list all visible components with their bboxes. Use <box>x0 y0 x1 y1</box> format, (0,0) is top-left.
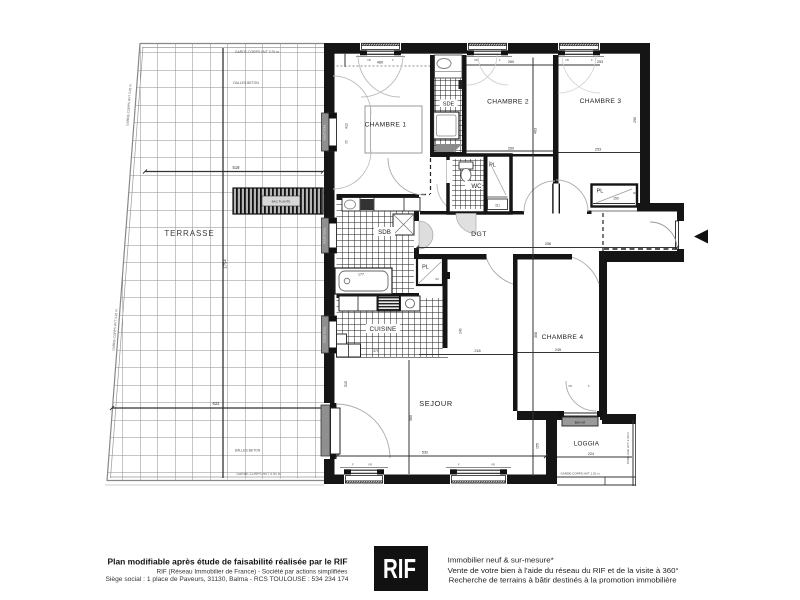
svg-text:VR: VR <box>474 58 478 62</box>
svg-text:218: 218 <box>474 349 480 353</box>
svg-text:519: 519 <box>233 165 241 170</box>
svg-text:LOGGIA: LOGGIA <box>574 441 600 448</box>
svg-text:PL: PL <box>597 189 604 195</box>
svg-text:F: F <box>588 384 590 388</box>
svg-text:177: 177 <box>358 273 364 277</box>
svg-text:260: 260 <box>508 60 514 64</box>
svg-text:PARE-VUE HVT 1.60 m: PARE-VUE HVT 1.60 m <box>626 432 630 464</box>
svg-text:VOLET ROUL.: VOLET ROUL. <box>323 326 327 343</box>
svg-text:63: 63 <box>435 277 439 281</box>
svg-text:253: 253 <box>595 148 601 152</box>
svg-text:CUISINE: CUISINE <box>370 326 397 333</box>
svg-text:253: 253 <box>597 60 603 64</box>
svg-text:SDE: SDE <box>443 102 455 108</box>
svg-text:306: 306 <box>534 332 538 338</box>
svg-text:95: 95 <box>345 140 349 144</box>
svg-text:F: F <box>591 58 593 62</box>
svg-text:Siège social : 1 place de Pave: Siège social : 1 place de Paveurs, 31130… <box>106 577 350 583</box>
svg-text:60: 60 <box>633 191 637 195</box>
svg-text:PL: PL <box>422 265 429 271</box>
svg-text:VR: VR <box>491 463 495 467</box>
svg-text:CHAMBRE 4: CHAMBRE 4 <box>542 334 584 341</box>
svg-text:DALLES BETON: DALLES BETON <box>233 81 259 85</box>
svg-text:RIF (Réseau Immobilier de Fra: RIF (Réseau Immobilier de France) - Soci… <box>157 569 348 575</box>
svg-text:240: 240 <box>459 328 463 334</box>
svg-text:Plan modifiable après étude de: Plan modifiable après étude de faisabili… <box>108 557 348 567</box>
svg-text:360: 360 <box>409 415 413 421</box>
svg-text:VR: VR <box>368 463 372 467</box>
svg-text:1754: 1754 <box>223 259 228 269</box>
svg-text:515: 515 <box>344 381 348 387</box>
svg-text:DALLES BETON: DALLES BETON <box>235 449 261 453</box>
svg-text:CHAMBRE 2: CHAMBRE 2 <box>487 99 529 106</box>
svg-text:290: 290 <box>633 117 637 123</box>
svg-text:VR: VR <box>367 58 371 62</box>
svg-text:F: F <box>499 58 501 62</box>
svg-text:532: 532 <box>422 451 428 455</box>
svg-text:622: 622 <box>213 401 221 406</box>
svg-text:DGT: DGT <box>471 231 487 238</box>
svg-text:VR: VR <box>568 384 572 388</box>
svg-text:311: 311 <box>495 204 500 208</box>
svg-text:370: 370 <box>373 349 379 353</box>
svg-text:VOLET ROUL.: VOLET ROUL. <box>323 123 327 140</box>
svg-text:BSO+VR: BSO+VR <box>575 421 586 425</box>
svg-text:BAC PLANTE: BAC PLANTE <box>272 200 291 204</box>
svg-text:Vente de votre bien à l'aide d: Vente de votre bien à l'aide du réseau d… <box>448 566 679 575</box>
svg-text:WC: WC <box>471 183 482 190</box>
svg-text:TERRASSE: TERRASSE <box>164 229 214 238</box>
svg-text:155: 155 <box>536 443 540 449</box>
svg-text:Recherche de terrains à bâtir: Recherche de terrains à bâtir destinés à… <box>449 575 677 584</box>
svg-text:F: F <box>352 463 354 467</box>
svg-text:412: 412 <box>345 123 349 129</box>
svg-text:GARDE-CORPS HVT 0.91 m: GARDE-CORPS HVT 0.91 m <box>236 472 280 476</box>
svg-text:CHAMBRE 1: CHAMBRE 1 <box>365 122 407 129</box>
svg-text:F: F <box>392 58 394 62</box>
svg-text:260: 260 <box>508 147 514 151</box>
svg-text:GARDE-CORPS HVT 0.91 m: GARDE-CORPS HVT 0.91 m <box>235 50 279 54</box>
svg-text:SDB: SDB <box>378 229 391 236</box>
svg-text:VOLET ROUL.: VOLET ROUL. <box>323 227 327 244</box>
svg-text:F: F <box>458 463 460 467</box>
svg-text:RIF: RIF <box>383 553 416 584</box>
svg-text:GARDE-CORPS HVT 1.01 m: GARDE-CORPS HVT 1.01 m <box>560 472 600 476</box>
svg-text:256: 256 <box>545 242 551 246</box>
svg-text:463: 463 <box>534 128 538 134</box>
svg-text:Immobilier neuf & sur-mesure*: Immobilier neuf & sur-mesure* <box>448 555 554 564</box>
svg-text:245: 245 <box>555 348 561 352</box>
svg-text:224: 224 <box>588 452 594 456</box>
svg-text:460: 460 <box>377 61 383 65</box>
svg-text:VR: VR <box>565 58 569 62</box>
svg-text:CHAMBRE 3: CHAMBRE 3 <box>580 98 622 105</box>
svg-text:SEJOUR: SEJOUR <box>419 399 453 408</box>
svg-text:150: 150 <box>613 197 619 201</box>
